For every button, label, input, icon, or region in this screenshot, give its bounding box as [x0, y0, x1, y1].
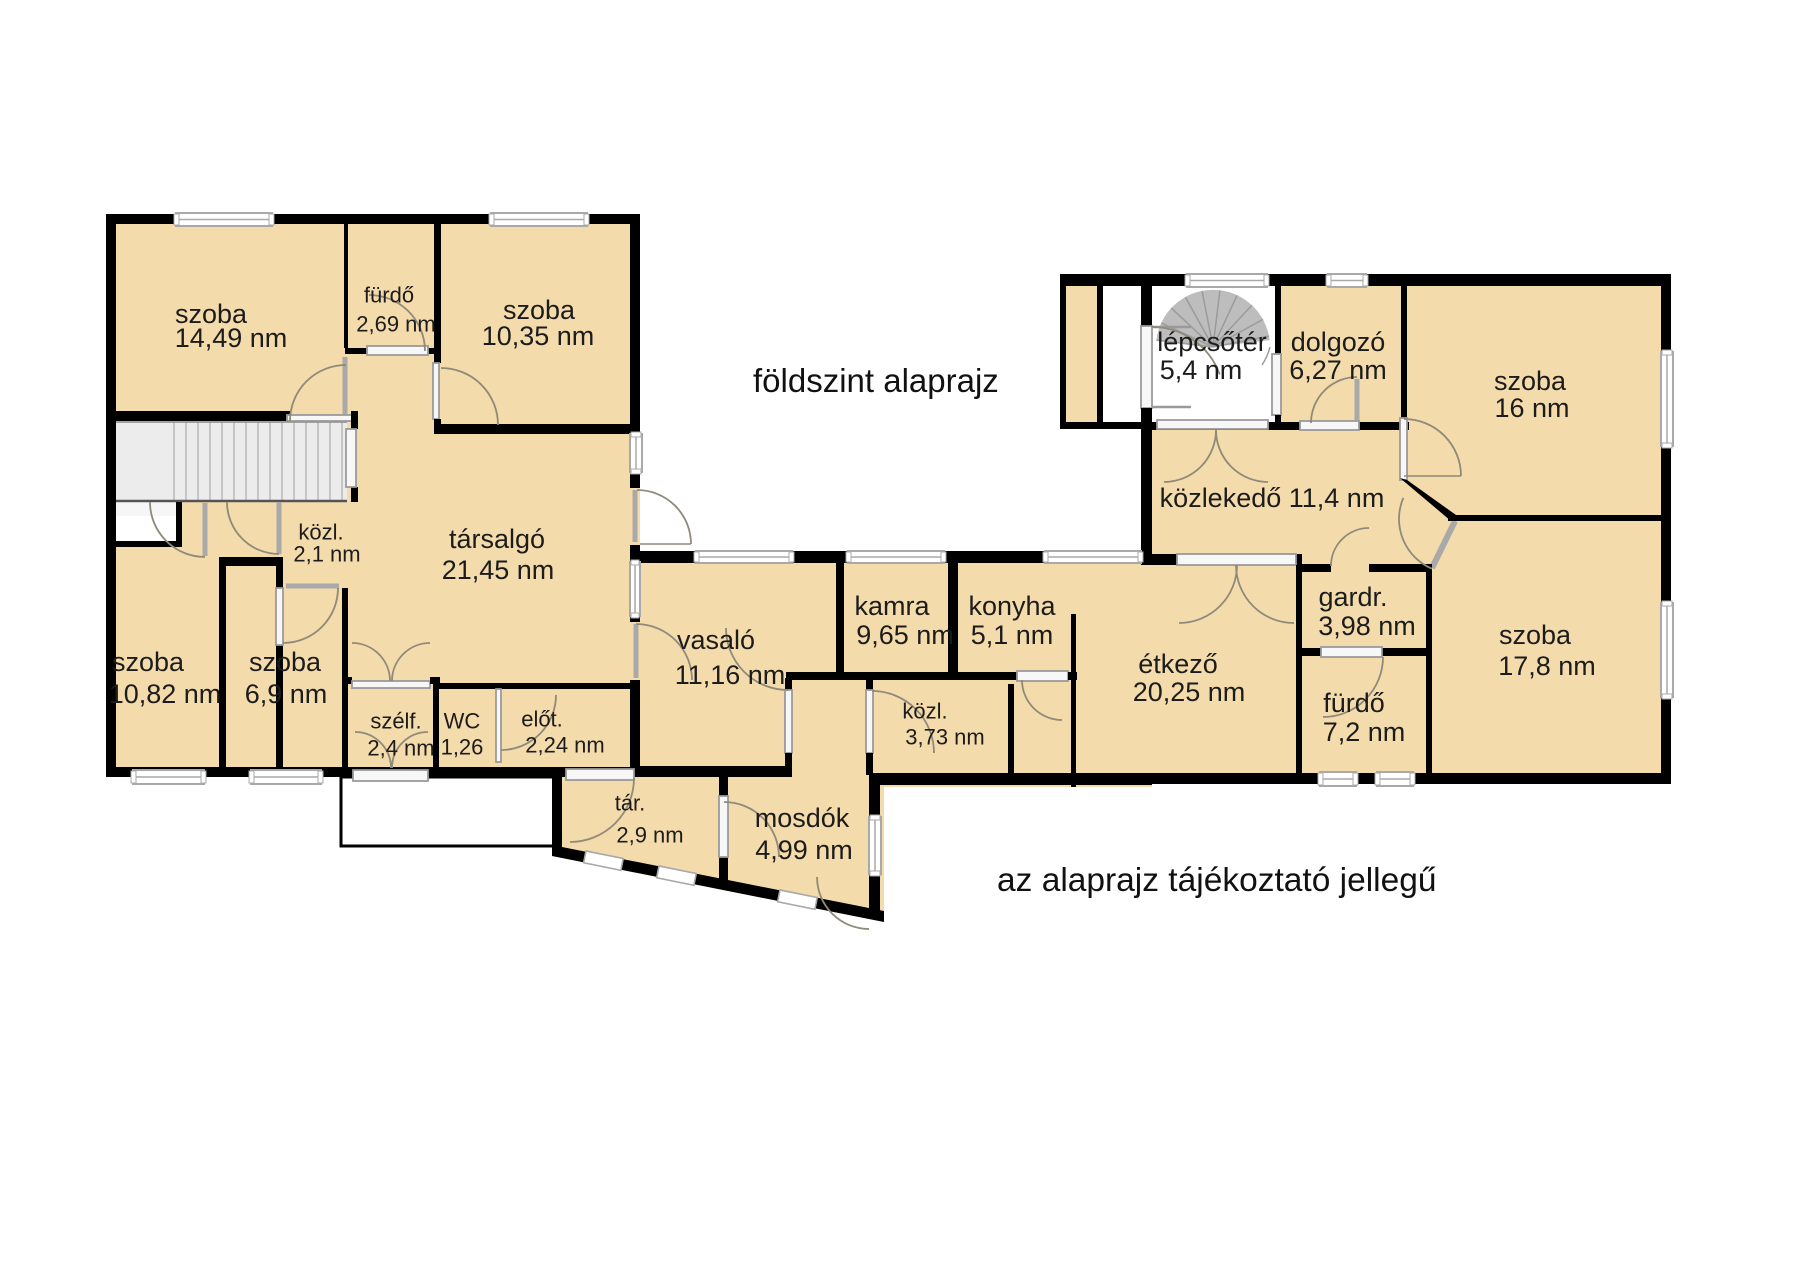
svg-text:16 nm: 16 nm: [1494, 393, 1569, 423]
svg-text:2,9 nm: 2,9 nm: [616, 823, 683, 848]
svg-text:2,69 nm: 2,69 nm: [356, 312, 436, 337]
svg-text:5,1 nm: 5,1 nm: [971, 620, 1054, 650]
svg-text:fürdő: fürdő: [364, 283, 414, 308]
svg-text:az alaprajz tájékoztató jelleg: az alaprajz tájékoztató jellegű: [997, 862, 1437, 899]
svg-text:7,2 nm: 7,2 nm: [1323, 717, 1406, 747]
svg-text:lépcsőtér: lépcsőtér: [1157, 327, 1267, 357]
svg-text:2,24 nm: 2,24 nm: [525, 733, 605, 758]
svg-text:20,25 nm: 20,25 nm: [1133, 677, 1246, 707]
svg-text:10,35 nm: 10,35 nm: [482, 321, 595, 351]
svg-text:10,82 nm: 10,82 nm: [109, 679, 222, 709]
svg-text:3,73 nm: 3,73 nm: [905, 725, 985, 750]
svg-text:szoba: szoba: [249, 647, 322, 677]
svg-text:mosdók: mosdók: [755, 803, 850, 833]
svg-text:konyha: konyha: [968, 591, 1056, 621]
svg-text:társalgó: társalgó: [449, 524, 545, 554]
svg-text:21,45 nm: 21,45 nm: [442, 555, 555, 585]
svg-text:14,49 nm: 14,49 nm: [175, 323, 288, 353]
svg-text:előt.: előt.: [521, 707, 563, 732]
svg-text:17,8 nm: 17,8 nm: [1498, 651, 1596, 681]
svg-text:6,27 nm: 6,27 nm: [1289, 355, 1387, 385]
svg-text:fürdő: fürdő: [1323, 688, 1385, 718]
svg-text:földszint alaprajz: földszint alaprajz: [753, 362, 999, 399]
svg-text:11,16 nm: 11,16 nm: [675, 660, 786, 690]
svg-text:1,26: 1,26: [441, 735, 484, 760]
svg-text:WC: WC: [444, 709, 481, 734]
svg-text:szoba: szoba: [1499, 620, 1572, 650]
svg-text:szélf.: szélf.: [370, 709, 421, 734]
svg-text:szoba: szoba: [112, 647, 185, 677]
svg-text:2,4 nm: 2,4 nm: [367, 736, 434, 761]
svg-text:6,9 nm: 6,9 nm: [245, 679, 328, 709]
svg-text:dolgozó: dolgozó: [1291, 327, 1386, 357]
svg-text:kamra: kamra: [854, 591, 930, 621]
svg-text:vasaló: vasaló: [677, 625, 755, 655]
svg-text:3,98 nm: 3,98 nm: [1318, 611, 1416, 641]
svg-text:9,65 nm: 9,65 nm: [856, 620, 954, 650]
svg-text:4,99 nm: 4,99 nm: [755, 835, 853, 865]
svg-text:tár.: tár.: [615, 791, 646, 816]
svg-text:étkező: étkező: [1138, 649, 1218, 679]
svg-text:közlekedő 11,4 nm: közlekedő 11,4 nm: [1160, 483, 1385, 513]
svg-text:gardr.: gardr.: [1318, 582, 1387, 612]
svg-text:szoba: szoba: [1494, 366, 1567, 396]
svg-text:5,4 nm: 5,4 nm: [1160, 355, 1243, 385]
svg-text:közl.: közl.: [902, 699, 947, 724]
svg-text:2,1 nm: 2,1 nm: [293, 542, 360, 567]
